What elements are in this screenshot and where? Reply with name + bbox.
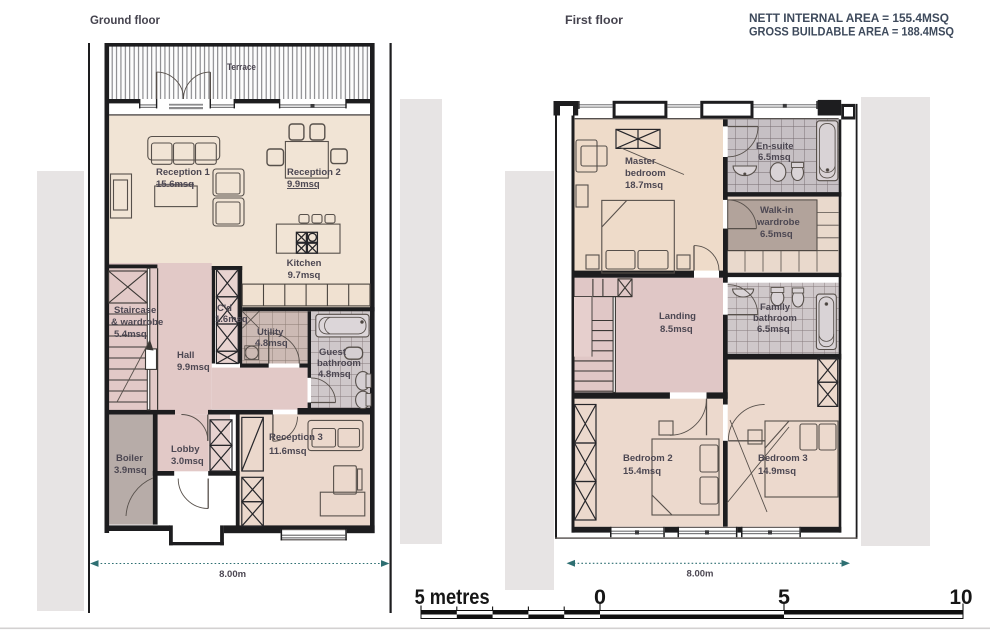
svg-text:Lobby: Lobby	[171, 444, 200, 455]
svg-text:GROSS BUILDABLE AREA = 188.4MS: GROSS BUILDABLE AREA = 188.4MSQ	[749, 25, 954, 39]
svg-text:bedroom: bedroom	[625, 168, 666, 179]
svg-text:First floor: First floor	[565, 13, 623, 27]
svg-text:Boiler: Boiler	[116, 453, 143, 464]
svg-text:En-suite: En-suite	[756, 141, 793, 152]
svg-text:NETT INTERNAL AREA = 155.4MSQ: NETT INTERNAL AREA = 155.4MSQ	[749, 11, 949, 25]
svg-text:Guest: Guest	[319, 347, 347, 358]
svg-text:8.00m: 8.00m	[687, 569, 714, 580]
svg-text:9.7msq: 9.7msq	[288, 270, 321, 281]
svg-text:Reception 1: Reception 1	[156, 167, 211, 178]
svg-text:6.5msq: 6.5msq	[760, 229, 793, 240]
svg-text:Staircase: Staircase	[114, 305, 156, 316]
svg-text:3.0msq: 3.0msq	[171, 456, 204, 467]
svg-text:Master: Master	[625, 156, 656, 167]
svg-text:& wardrobe: & wardrobe	[111, 317, 163, 328]
svg-text:Reception 3: Reception 3	[269, 432, 323, 443]
svg-text:Family: Family	[760, 302, 791, 313]
svg-text:6.5msq: 6.5msq	[758, 152, 791, 163]
svg-text:18.7msq: 18.7msq	[625, 180, 663, 191]
svg-text:6.5msq: 6.5msq	[757, 324, 790, 335]
svg-text:14.9msq: 14.9msq	[758, 466, 796, 477]
svg-text:1.6msq: 1.6msq	[215, 314, 248, 325]
svg-text:8.00m: 8.00m	[219, 569, 246, 580]
svg-text:5: 5	[778, 585, 790, 609]
svg-text:bathroom: bathroom	[317, 358, 361, 369]
svg-text:15.4msq: 15.4msq	[623, 466, 661, 477]
svg-text:8.5msq: 8.5msq	[660, 324, 693, 335]
svg-text:Terrace: Terrace	[227, 62, 256, 73]
svg-text:Reception 2: Reception 2	[287, 167, 341, 178]
svg-text:Bedroom 3: Bedroom 3	[758, 453, 808, 464]
svg-text:wardrobe: wardrobe	[756, 217, 800, 228]
svg-text:Utility: Utility	[257, 327, 284, 338]
svg-text:Kitchen: Kitchen	[287, 258, 322, 269]
svg-text:5.4msq: 5.4msq	[114, 329, 147, 340]
svg-text:Walk-in: Walk-in	[760, 205, 794, 216]
svg-text:0: 0	[594, 585, 606, 609]
svg-text:4.8msq: 4.8msq	[255, 338, 288, 349]
svg-text:Landing: Landing	[659, 311, 696, 322]
svg-text:Ground floor: Ground floor	[90, 13, 160, 27]
svg-text:9.9msq: 9.9msq	[177, 362, 210, 373]
svg-text:15.6msq: 15.6msq	[156, 179, 194, 190]
svg-text:9.9msq: 9.9msq	[287, 179, 320, 190]
svg-text:10: 10	[950, 585, 973, 609]
svg-text:C'd: C'd	[217, 303, 232, 314]
svg-text:Bedroom 2: Bedroom 2	[623, 453, 673, 464]
svg-text:bathroom: bathroom	[753, 313, 797, 324]
svg-text:3.9msq: 3.9msq	[114, 465, 147, 476]
svg-text:Hall: Hall	[177, 350, 194, 361]
svg-text:11.6msq: 11.6msq	[269, 446, 307, 457]
svg-text:5 metres: 5 metres	[415, 585, 490, 609]
svg-text:4.8msq: 4.8msq	[318, 369, 351, 380]
